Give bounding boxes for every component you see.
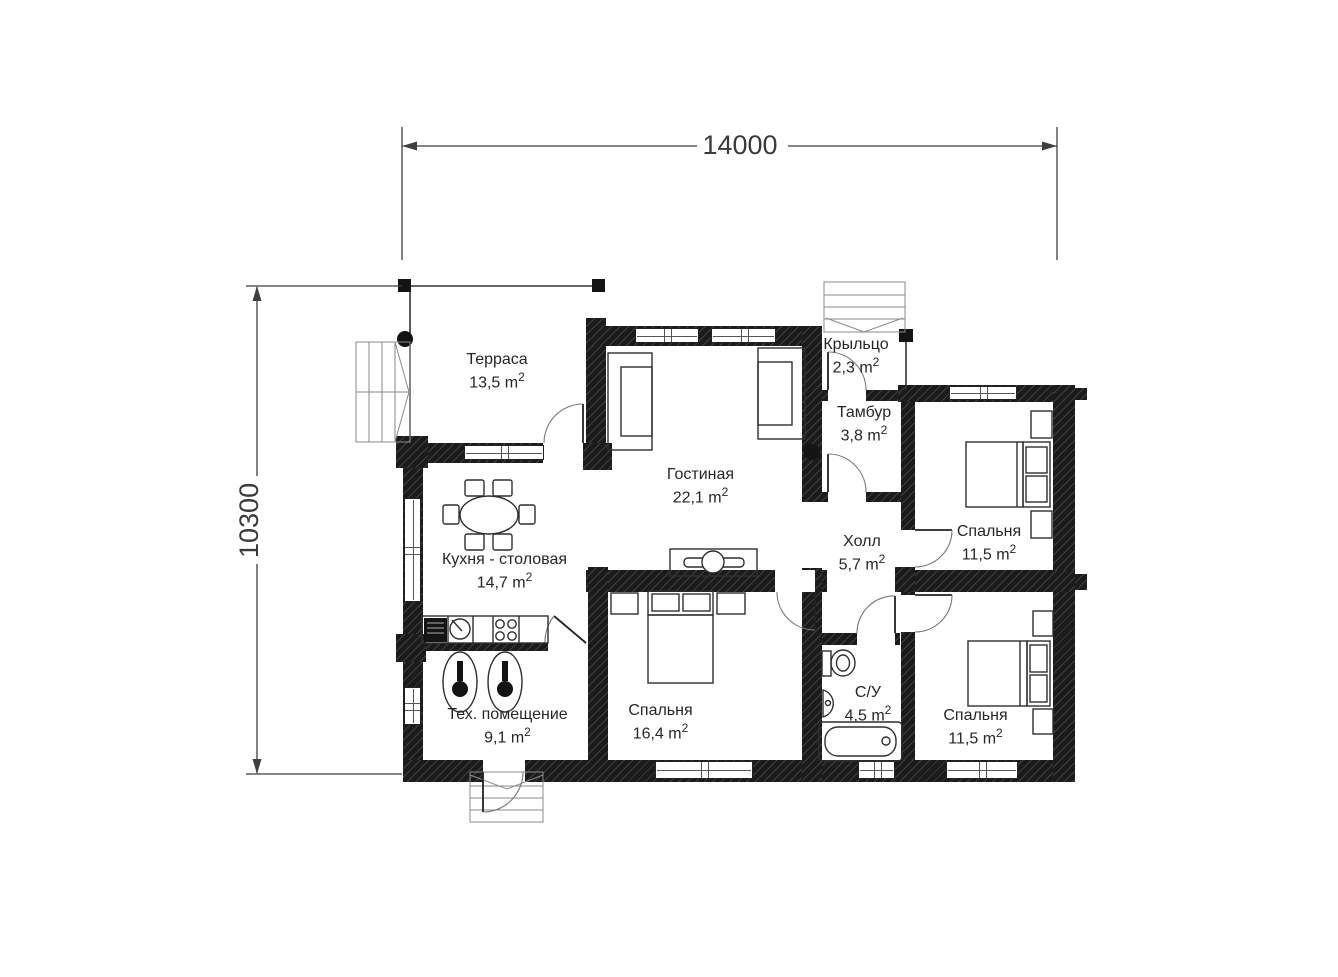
terrace-stairs <box>356 342 410 442</box>
window-bedroom-ne <box>949 386 1017 400</box>
room-label-living: Гостиная 22,1 m2 <box>628 466 773 508</box>
room-label-kitchen: Кухня - столовая 14,7 m2 <box>412 551 597 593</box>
kitchen-counter <box>422 616 548 643</box>
window-bedroom-se <box>946 761 1018 779</box>
wall-kitchen-tech <box>423 643 548 651</box>
door-tambour-hall <box>828 454 866 492</box>
wall-stub-ne <box>1075 388 1087 400</box>
door-kitchen-tech <box>545 616 586 643</box>
door-bathroom <box>857 596 895 633</box>
room-label-bedroom-se: Спальня 11,5 m2 <box>913 707 1038 749</box>
bathtub <box>819 722 902 761</box>
room-label-bathroom: С/У 4,5 m2 <box>818 684 918 726</box>
room-label-hall: Холл 5,7 m2 <box>812 533 912 575</box>
room-label-bedroom-ne: Спальня 11,5 m2 <box>930 523 1048 565</box>
opening-tambour-door <box>828 492 866 502</box>
opening-bedroom-mid-door <box>775 570 815 592</box>
wall-junction-block-west <box>396 634 426 662</box>
wall-mid-east <box>895 570 1075 592</box>
window-bath <box>858 761 895 779</box>
opening-bath-door <box>857 633 895 645</box>
wall-block-kitchen-ne <box>583 443 612 470</box>
wall-corner-block-nw <box>396 436 428 468</box>
wall-stub-e <box>1075 574 1087 590</box>
porch-steps <box>824 282 905 332</box>
window-bedroom-mid <box>655 761 753 779</box>
window-kitchen-terrace <box>464 445 544 460</box>
opening-tech-exit <box>483 760 525 782</box>
door-bedroom-se <box>915 595 952 632</box>
window-living-2 <box>711 328 776 343</box>
bed-mid <box>611 591 745 683</box>
wall-living-top <box>586 326 822 346</box>
dimension-height: 10300 <box>234 477 278 563</box>
dining-table <box>443 480 535 550</box>
room-label-terrace: Терраса 13,5 m2 <box>427 351 567 393</box>
room-label-tech: Тех. помещение 9,1 m2 <box>415 706 600 748</box>
floor-plan: 14000 10300 Терраса 13,5 m2 Крыльцо 2,3 … <box>0 0 1338 977</box>
wall-tech-east <box>588 567 608 782</box>
room-label-bedroom-mid: Спальня 16,4 m2 <box>588 702 733 744</box>
boiler-2 <box>488 652 522 712</box>
room-label-tambour: Тамбур 3,8 m2 <box>814 404 914 446</box>
dimension-width: 14000 <box>692 130 788 161</box>
door-terrace <box>544 404 583 443</box>
opening-bedroom-se-door <box>899 595 917 632</box>
opening-terrace-door <box>543 443 583 463</box>
sofa-left <box>608 353 652 450</box>
sofa-right <box>758 348 805 439</box>
boiler-1 <box>443 652 477 712</box>
window-living-1 <box>635 328 699 343</box>
opening-porch-door <box>828 390 866 401</box>
bed-ne <box>966 411 1052 538</box>
wall-bedroom-mid-east <box>802 568 822 782</box>
toilet <box>822 650 855 676</box>
room-label-porch: Крыльцо 2,3 m2 <box>806 336 906 378</box>
